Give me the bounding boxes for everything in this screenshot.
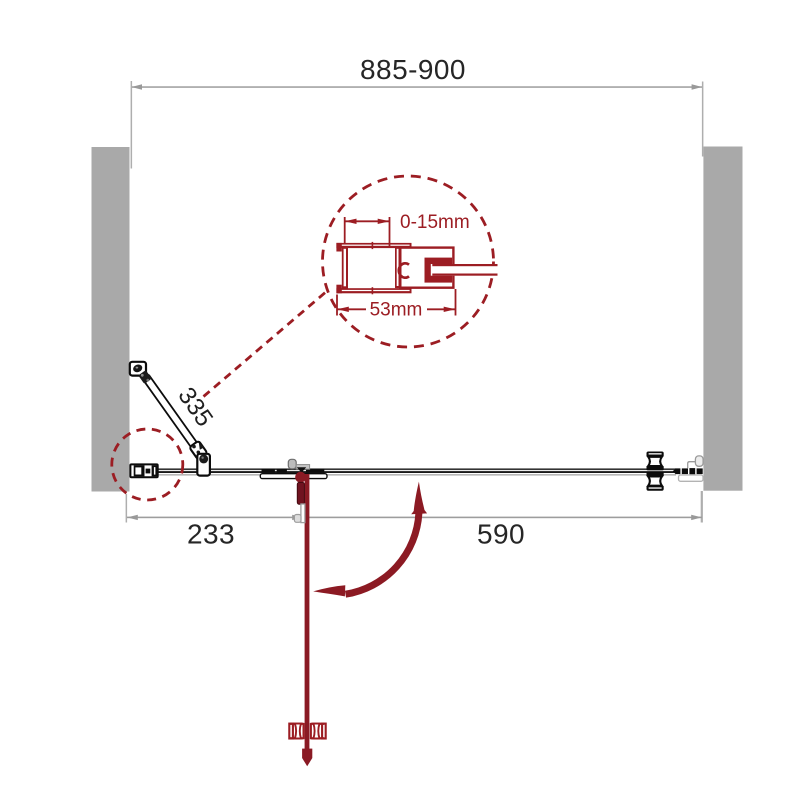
svg-text:233: 233 — [187, 519, 235, 550]
svg-text:0-15mm: 0-15mm — [400, 212, 470, 233]
svg-text:53mm: 53mm — [370, 300, 423, 321]
svg-text:885-900: 885-900 — [360, 54, 466, 85]
svg-text:590: 590 — [477, 519, 525, 550]
